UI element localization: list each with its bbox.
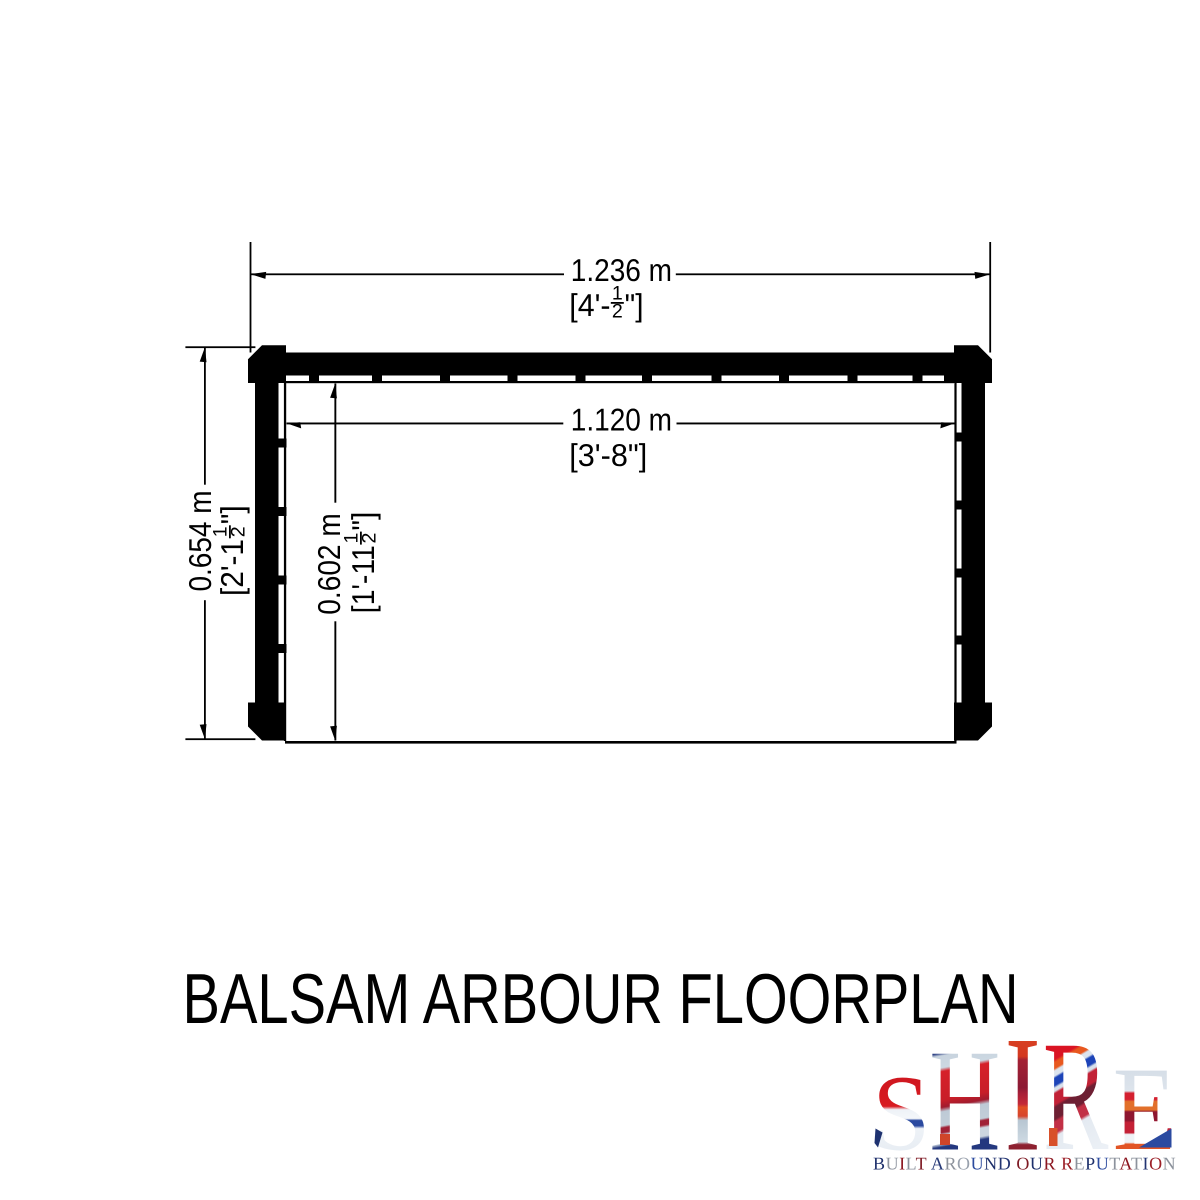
svg-text:"]: "] xyxy=(214,505,250,524)
svg-text:0.654 m: 0.654 m xyxy=(182,491,218,592)
svg-text:0.602 m: 0.602 m xyxy=(311,513,347,614)
svg-text:BALSAM ARBOUR FLOORPLAN: BALSAM ARBOUR FLOORPLAN xyxy=(183,960,1019,1039)
svg-text:"]: "] xyxy=(345,512,381,531)
svg-text:2: 2 xyxy=(228,526,250,537)
svg-text:BUILT AROUND OUR REPUTATION: BUILT AROUND OUR REPUTATION xyxy=(873,1154,1176,1174)
svg-text:"]: "] xyxy=(625,287,644,323)
svg-text:1.120 m: 1.120 m xyxy=(571,402,672,438)
svg-text:[4'-: [4'- xyxy=(569,287,610,323)
svg-text:[1'-11: [1'-11 xyxy=(345,545,381,613)
svg-text:2: 2 xyxy=(359,533,381,544)
svg-text:[2'-1: [2'-1 xyxy=(214,539,250,596)
svg-text:[3'-8"]: [3'-8"] xyxy=(569,437,647,473)
svg-text:2: 2 xyxy=(612,301,623,323)
